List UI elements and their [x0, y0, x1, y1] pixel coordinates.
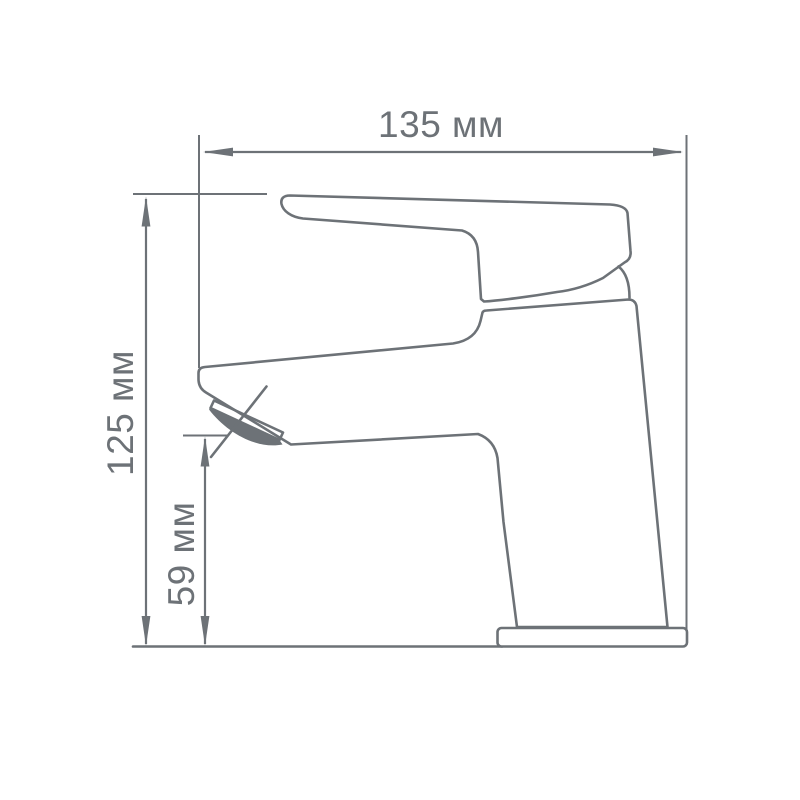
faucet-body-outline: [199, 300, 668, 628]
spout-height-dimension-label: 59 мм: [161, 502, 202, 607]
cartridge-seam-curve: [619, 267, 630, 298]
arrowhead-down-icon: [142, 616, 151, 646]
arrowhead-right-icon: [653, 148, 683, 157]
arrowhead-up-icon: [201, 437, 210, 467]
arrowhead-up-icon: [142, 197, 151, 227]
spout-height-dimension: 59 мм: [161, 436, 227, 647]
height-dimension-label: 125 мм: [100, 350, 141, 476]
faucet-handle-outline: [281, 196, 630, 302]
diagram-canvas: 135 мм 125 мм 59 мм: [0, 0, 800, 800]
arrowhead-left-icon: [203, 148, 233, 157]
base-plate: [498, 628, 688, 647]
faucet-dimension-diagram: 135 мм 125 мм 59 мм: [0, 0, 800, 800]
width-dimension-label: 135 мм: [378, 104, 504, 145]
faucet-drawing: [133, 196, 687, 647]
arrowhead-down-icon: [201, 616, 210, 646]
